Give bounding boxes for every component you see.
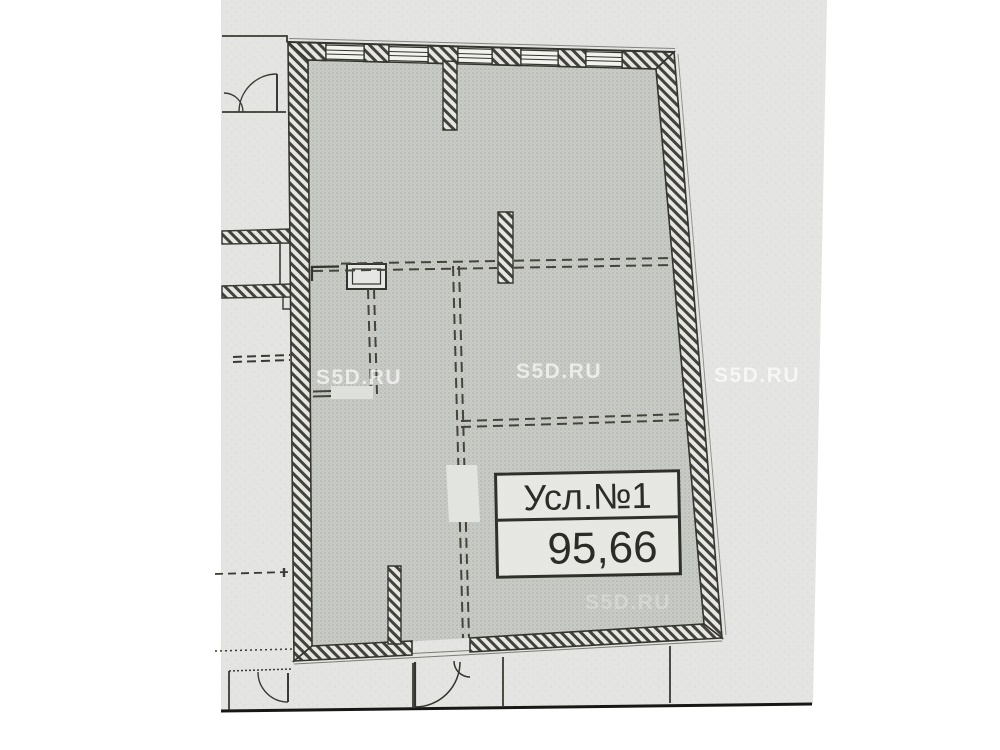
unit-area: 95,66 (498, 518, 679, 578)
pier-2 (364, 44, 389, 62)
scan-photo: S5D.RU S5D.RU S5D.RU S5D.RU Усл.№1 95,66 (0, 0, 1000, 750)
window-2 (389, 47, 428, 62)
stub-bottom-left (388, 566, 401, 644)
neighbor-wall-band-1 (222, 229, 292, 244)
unit-label: Усл.№1 (497, 472, 678, 521)
label-box: Усл.№1 95,66 (494, 469, 682, 579)
stub-top (443, 61, 457, 130)
stub-middle (498, 212, 513, 283)
floor-plan-svg (0, 0, 1000, 750)
watermark-1: S5D.RU (316, 366, 402, 390)
watermark-3: S5D.RU (714, 364, 800, 388)
watermark-2: S5D.RU (516, 360, 602, 384)
window-1 (326, 45, 364, 60)
pier-5 (558, 49, 586, 67)
duct-shaft (347, 264, 386, 289)
partition-door-gap (446, 465, 480, 522)
window-5 (586, 52, 622, 67)
watermark-4: S5D.RU (585, 591, 671, 615)
window-3 (458, 48, 492, 63)
neighbor-wall-band-2 (222, 284, 293, 298)
window-4 (521, 50, 558, 65)
pier-4 (492, 47, 521, 65)
